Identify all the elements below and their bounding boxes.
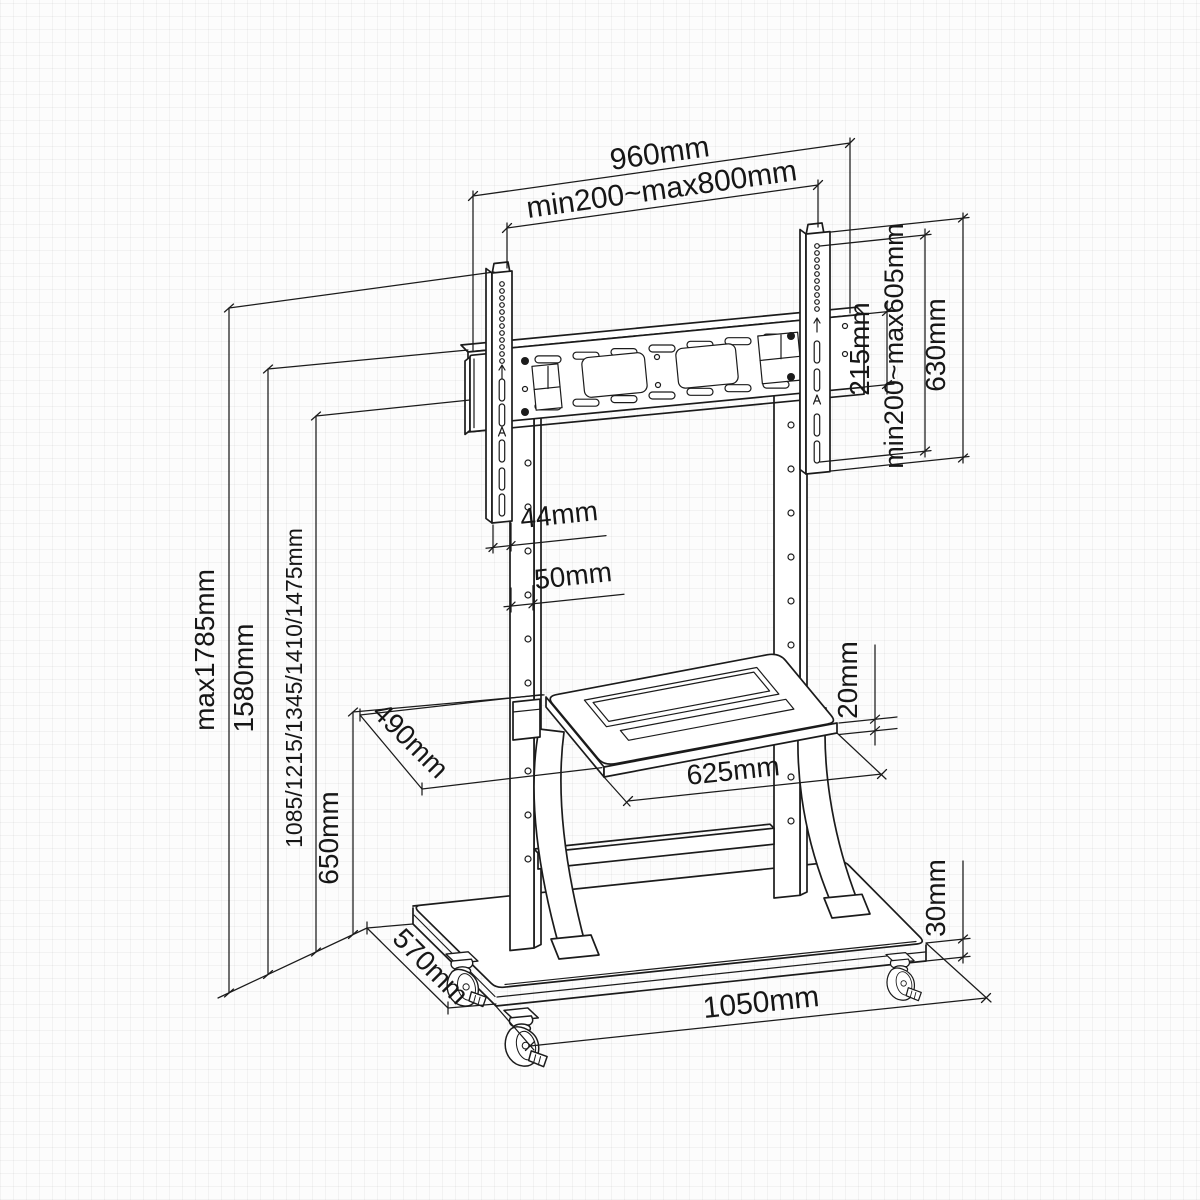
crossbar-cutout-left [581,352,648,398]
rail-left-side-face [486,269,492,524]
dim-label-overall-height: max1785mm [189,569,220,731]
vesa-rail-left [486,262,512,523]
dim-label-bracket-plate-height: 215mm [844,302,875,395]
left-end-plate [465,354,488,435]
dim-label-shelf-height: 650mm [313,791,344,884]
caster-front-left [504,1008,547,1067]
shelf-leg-left-foot [551,935,599,959]
rear-beam-front-face [538,828,774,869]
ground-baseline [218,928,367,998]
vesa-rail-right [800,223,830,474]
shelf-bracket-left [513,699,540,740]
dim-label-shelf-thickness: 20mm [832,641,863,719]
rear-beam [534,824,774,869]
dim-label-vesa-height-range: min200~max605mm [879,223,909,468]
drawing-page: 960mm min200~max800mm 215mm min200~max60… [0,0,1200,1200]
dim-base-thickness: 30mm [920,859,970,963]
dim-label-column-width: 50mm [533,556,614,595]
technical-drawing: 960mm min200~max800mm 215mm min200~max60… [0,0,1200,1200]
crossbar-clamp-right [758,332,802,384]
dim-bracket-top-height: 1580mm [228,350,468,979]
crossbar-cutout-right [675,343,739,389]
dim-label-base-width: 1050mm [701,980,821,1025]
dim-label-rail-height: 630mm [920,298,951,391]
caster-front-right [886,953,921,1001]
dim-label-height-settings: 1085/1215/1345/1410/1475mm [281,528,307,848]
shelf-leg-right-foot [824,894,870,918]
dim-label-bracket-top-height: 1580mm [228,624,259,733]
dim-label-base-thickness: 30mm [920,859,951,937]
rail-right-side-face [800,230,806,475]
upright-column-left [510,339,541,951]
dim-vesa-width-range: min200~max800mm [503,154,823,268]
rail-left-slots [499,379,505,516]
dim-height-settings: 1085/1215/1345/1410/1475mm [281,400,470,956]
dim-shelf-thickness: 20mm [832,641,897,745]
